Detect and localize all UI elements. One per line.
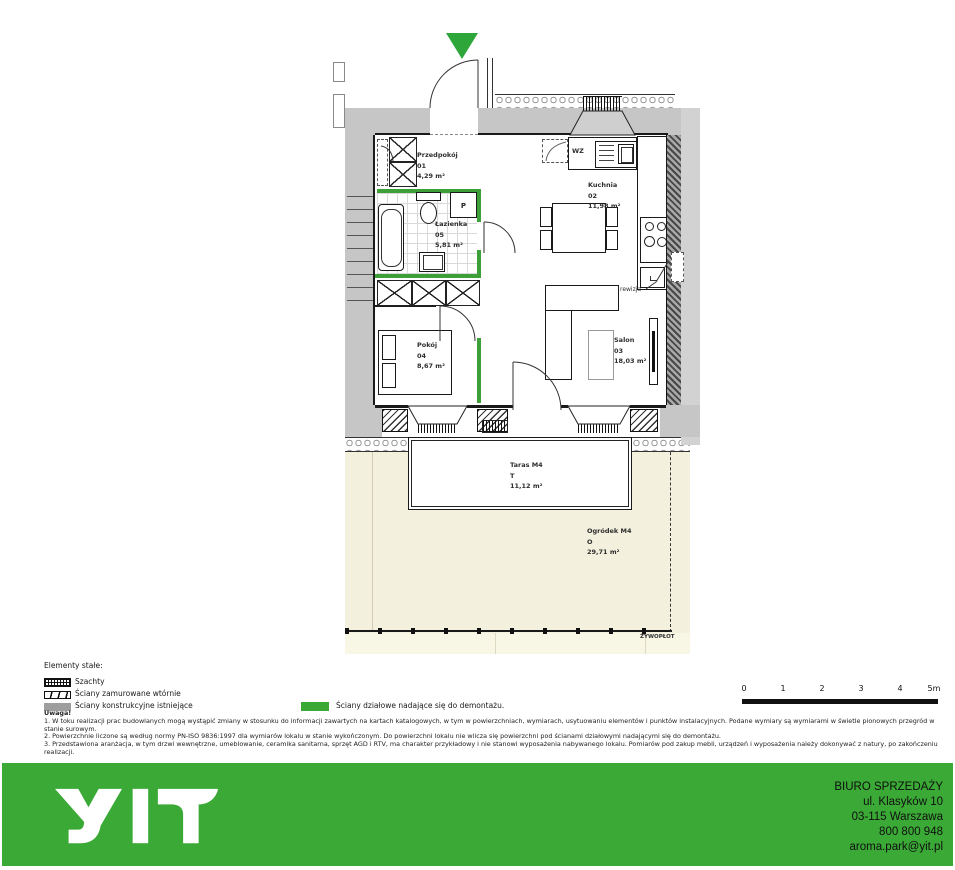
wall-bottom-edge-4 <box>630 405 666 408</box>
room-number: 04 <box>417 351 445 362</box>
bathtub <box>378 204 404 271</box>
scale-bar <box>742 699 938 704</box>
garden-hedge-dashed-line <box>670 437 671 632</box>
hall-cabinet <box>377 139 388 186</box>
kitchen-sink-drainer <box>599 145 614 164</box>
tv-screen <box>652 331 655 372</box>
bed-pillow-1 <box>382 335 396 360</box>
washer-box: P <box>450 192 477 218</box>
window-salon <box>568 406 630 424</box>
garden-outer-strip <box>345 633 690 654</box>
coffee-table <box>588 330 614 380</box>
stair-rungs <box>347 196 373 308</box>
entrance-opening <box>430 108 478 135</box>
scale-0: 0 <box>732 684 756 693</box>
zywoplot-annotation: ŻYWOPŁOT <box>640 634 675 640</box>
wz-annotation: WZ <box>572 147 584 155</box>
garden-line-1 <box>495 633 496 654</box>
kitchen-sink-basin <box>618 144 634 164</box>
room-number: 01 <box>417 161 458 172</box>
garden-fence-ticks <box>345 628 672 634</box>
note-1: 1. W toku realizacji prac budowlanych mo… <box>44 718 954 734</box>
office-email: aroma.park@yit.pl <box>598 840 943 855</box>
wall-bottom-edge-2 <box>467 405 513 408</box>
legend-title: Elementy stałe: <box>44 661 103 670</box>
room-label-lazienka: Łazienka 05 5,81 m² <box>435 219 467 251</box>
wall-infill-hatch-3 <box>630 409 658 432</box>
legend-swatch-szachty <box>44 678 71 687</box>
room-name: Łazienka <box>435 219 467 230</box>
kitchen-vent-box <box>542 139 568 163</box>
window-bedroom <box>408 406 467 424</box>
wall-bottom-left-block <box>345 405 382 437</box>
room-area: 18,03 m² <box>614 356 646 367</box>
exterior-detail-1 <box>333 62 345 82</box>
wall-bottom-right-block <box>660 405 700 437</box>
footer-band: YIT BIURO SPRZEDAŻY ul. Klasyków 10 03-1… <box>2 763 953 866</box>
washer-label: P <box>461 202 466 210</box>
scale-2: 2 <box>810 684 834 693</box>
room-area: 11,98 m² <box>588 201 620 212</box>
scale-1: 1 <box>771 684 795 693</box>
room-number: 02 <box>588 191 620 202</box>
wall-top-edge-b <box>478 133 668 135</box>
room-number: O <box>587 537 632 548</box>
room-number: 05 <box>435 230 467 241</box>
yit-logo-mark <box>55 788 220 846</box>
room-area: 4,29 m² <box>417 171 458 182</box>
shaft-box-hall-2 <box>389 162 417 187</box>
wall-top-edge-a <box>375 133 430 135</box>
chimney-comb <box>583 96 622 111</box>
cabinet-mark <box>650 276 657 281</box>
room-number: T <box>510 471 543 482</box>
room-number: 03 <box>614 346 646 357</box>
sofa-back-section <box>545 285 619 311</box>
paving-strip-terrace-left <box>345 437 408 452</box>
room-area: 11,12 m² <box>510 481 543 492</box>
room-name: Pokój <box>417 340 445 351</box>
rewizja-annotation: rewizja <box>620 286 641 293</box>
railing-line-1 <box>487 58 488 108</box>
room-name: Przedpokój <box>417 150 458 161</box>
shaft-box-row-1 <box>377 280 412 306</box>
wall-infill-hatch-1 <box>382 409 408 432</box>
room-label-taras: Taras M4 T 11,12 m² <box>510 460 543 492</box>
room-area: 8,67 m² <box>417 361 445 372</box>
chair-right-2 <box>606 230 618 250</box>
entrance-marker-triangle <box>446 33 478 59</box>
chair-left-2 <box>540 230 552 250</box>
office-street: ul. Klasyków 10 <box>598 795 943 810</box>
shaft-box-row-3 <box>446 280 480 306</box>
kitchen-cabinet <box>640 267 665 288</box>
scale-5m: 5m <box>922 684 946 693</box>
legend-swatch-zamurowane <box>44 691 71 699</box>
legend-label-szachty: Szachty <box>75 677 105 686</box>
window-sill-bedroom <box>418 424 457 433</box>
office-name: BIURO SPRZEDAŻY <box>598 780 943 795</box>
bathroom-sink <box>419 252 445 272</box>
wall-bottom-edge-3 <box>561 405 568 408</box>
bathtub-inner <box>381 209 402 267</box>
partition-bathroom-right-a <box>477 189 481 222</box>
partition-bedroom-right <box>477 338 481 403</box>
room-name: Ogródek M4 <box>587 526 632 537</box>
wall-top <box>345 108 690 135</box>
room-label-kuchnia: Kuchnia 02 11,98 m² <box>588 180 620 212</box>
stove-burner-3 <box>644 236 655 247</box>
yit-logo: YIT <box>55 788 220 846</box>
scale-4: 4 <box>888 684 912 693</box>
room-name: Kuchnia <box>588 180 620 191</box>
stove-burner-4 <box>657 237 667 247</box>
room-label-salon: Salon 03 18,03 m² <box>614 335 646 367</box>
bathroom-sink-basin <box>423 255 443 270</box>
legend-label-zamurowane: Ściany zamurowane wtórnie <box>75 689 181 698</box>
partition-bathroom-bottom <box>375 274 481 278</box>
toilet-tank <box>416 192 441 201</box>
note-3: 3. Przedstawiona aranżacja, w tym drzwi … <box>44 741 954 757</box>
floor-plan-sheet: P <box>0 0 955 870</box>
sales-office-contact: BIURO SPRZEDAŻY ul. Klasyków 10 03-115 W… <box>598 780 943 855</box>
terrace-step <box>482 420 508 433</box>
scale-3: 3 <box>849 684 873 693</box>
room-name: Taras M4 <box>510 460 543 471</box>
chair-left-1 <box>540 207 552 227</box>
room-label-przedpokoj: Przedpokój 01 4,29 m² <box>417 150 458 182</box>
room-label-ogrodek: Ogródek M4 O 29,71 m² <box>587 526 632 558</box>
wall-bottom-edge-1 <box>375 405 408 408</box>
kitchen-sink-basin-inner <box>621 147 633 163</box>
stove-burner-2 <box>657 222 666 231</box>
revision-hatch <box>671 252 684 282</box>
bed-pillow-2 <box>382 363 396 388</box>
shaft-box-row-2 <box>412 280 446 306</box>
shaft-box-hall-1 <box>389 137 417 162</box>
exterior-detail-2 <box>333 94 345 128</box>
notes-block: Uwaga! 1. W toku realizacji prac budowla… <box>44 710 954 757</box>
legend-label-konstrukcyjne: Ściany konstrukcyjne istniejące <box>75 701 193 710</box>
office-city: 03-115 Warszawa <box>598 810 943 825</box>
garden-line-left <box>372 437 373 632</box>
window-sill-salon <box>578 424 620 433</box>
office-phone: 800 800 948 <box>598 825 943 840</box>
room-area: 5,81 m² <box>435 240 467 251</box>
wall-left-edge <box>373 135 375 405</box>
sofa-side-section <box>545 310 572 380</box>
stove-burner-1 <box>645 222 654 231</box>
legend-label-dzialowe: Ściany działowe nadające się do demontaż… <box>336 701 504 710</box>
railing-line-2 <box>492 58 493 108</box>
room-label-pokoj: Pokój 04 8,67 m² <box>417 340 445 372</box>
room-area: 29,71 m² <box>587 547 632 558</box>
room-name: Salon <box>614 335 646 346</box>
